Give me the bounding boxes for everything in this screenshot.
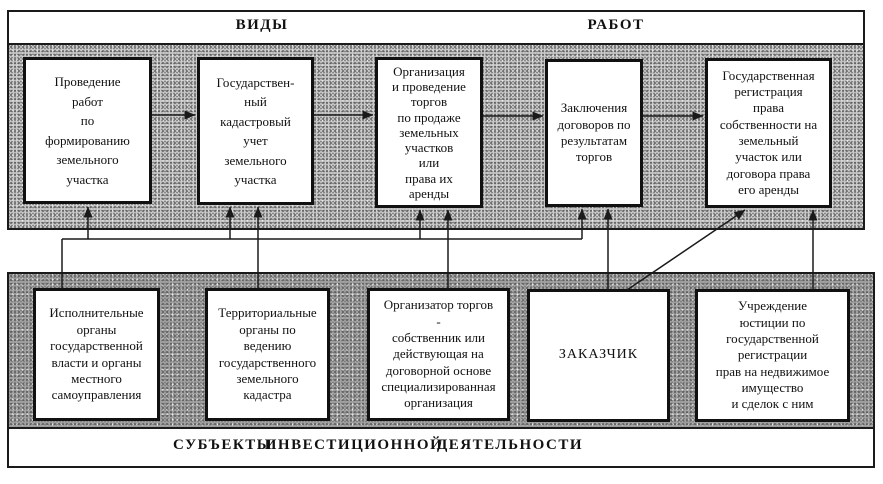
subject-box-justice-institution-label: Учреждение юстиции по государственной ре…	[700, 298, 845, 413]
work-box-auction-organization: Организация и проведение торгов по прода…	[375, 57, 483, 208]
subject-box-territorial-cadastre-bodies: Территориальные органы по ведению госуда…	[205, 288, 330, 421]
subjects-title-word-2: ИНВЕСТИЦИОННОЙ	[265, 437, 444, 454]
subject-box-executive-authorities: Исполнительные органы государственной вл…	[33, 288, 160, 421]
work-box-contract-conclusion-label: Заключения договоров по результатам торг…	[550, 100, 638, 166]
work-box-contract-conclusion: Заключения договоров по результатам торг…	[545, 59, 643, 207]
subject-box-territorial-cadastre-bodies-label: Территориальные органы по ведению госуда…	[210, 305, 325, 403]
subject-box-justice-institution: Учреждение юстиции по государственной ре…	[695, 289, 850, 422]
subject-box-auction-organizer: Организатор торгов - собственник или дей…	[367, 288, 510, 421]
works-title-right: РАБОТ	[587, 17, 644, 34]
subject-box-customer-label: ЗАКАЗЧИК	[532, 346, 665, 364]
work-box-land-formation-label: Проведение работ по формированию земельн…	[28, 72, 147, 189]
work-box-land-formation: Проведение работ по формированию земельн…	[23, 57, 152, 204]
subjects-title-word-1: СУБЪЕКТЫ	[173, 437, 273, 454]
work-box-state-registration: Государственная регистрация права собств…	[705, 58, 832, 208]
subjects-title-word-3: ДЕЯТЕЛЬНОСТИ	[437, 437, 583, 454]
work-box-state-registration-label: Государственная регистрация права собств…	[710, 68, 827, 199]
subject-box-customer: ЗАКАЗЧИК	[527, 289, 670, 422]
works-title-left: ВИДЫ	[236, 17, 289, 34]
subject-box-auction-organizer-label: Организатор торгов - собственник или дей…	[372, 297, 505, 412]
work-box-cadastral-registration-label: Государствен- ный кадастровый учет земел…	[202, 73, 309, 190]
diagram-canvas: ВИДЫ РАБОТ СУБЪЕКТЫ ИНВЕСТИЦИОННОЙ ДЕЯТЕ…	[0, 0, 883, 484]
work-box-cadastral-registration: Государствен- ный кадастровый учет земел…	[197, 57, 314, 205]
work-box-auction-organization-label: Организация и проведение торгов по прода…	[380, 64, 478, 201]
subject-box-executive-authorities-label: Исполнительные органы государственной вл…	[38, 305, 155, 403]
works-header-strip	[9, 12, 863, 43]
